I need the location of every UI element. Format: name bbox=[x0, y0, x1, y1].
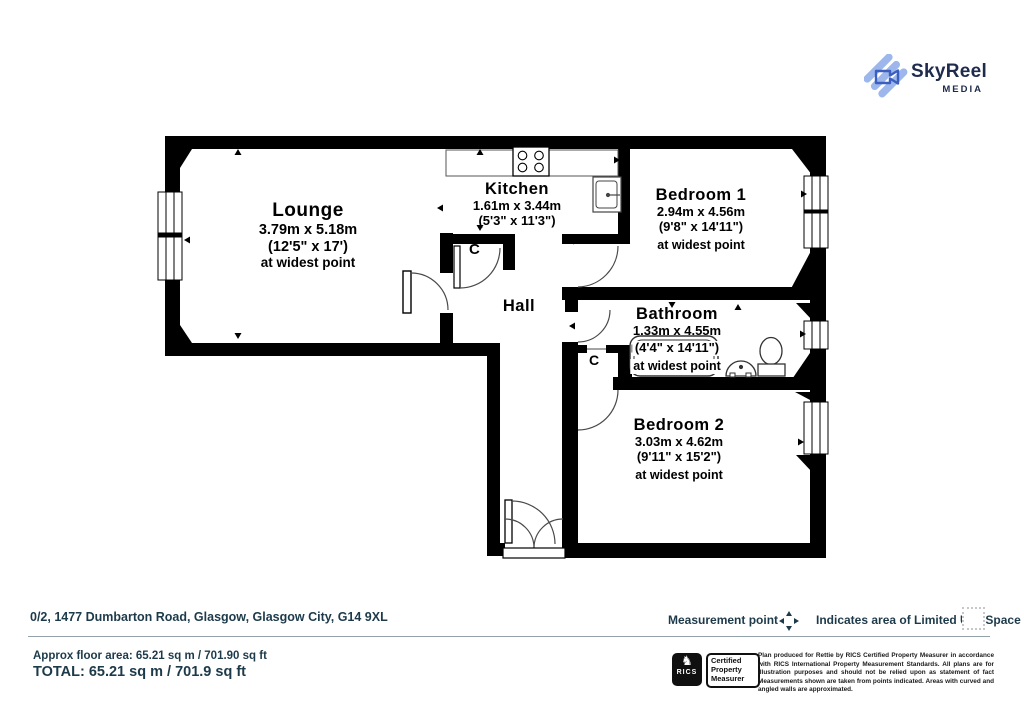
room-label-hall: Hall bbox=[503, 297, 535, 316]
video-camera-icon bbox=[864, 54, 908, 98]
arrow-left-icon bbox=[437, 205, 443, 212]
room-dims-metric: 3.03m x 4.62m bbox=[634, 435, 725, 450]
wall-cupboard2-stub-left bbox=[578, 345, 587, 353]
wall-cupboard2-stub-right bbox=[606, 345, 618, 353]
entrance-threshold bbox=[503, 548, 565, 558]
room-name: Hall bbox=[503, 297, 535, 316]
room-dims-metric: 1.33m x 4.55m bbox=[630, 324, 724, 339]
bedroom1-door-arc bbox=[578, 246, 618, 287]
room-dims-imperial: (5'3" x 11'3") bbox=[473, 214, 561, 229]
wall-top bbox=[165, 136, 826, 149]
kitchen-sink bbox=[593, 177, 621, 212]
room-label-bathroom: Bathroom 1.33m x 4.55m (4'4" x 14'11") a… bbox=[630, 305, 724, 376]
room-note: at widest point bbox=[634, 468, 725, 482]
chamfer-right-1 bbox=[786, 249, 812, 298]
rics-crest-icon: ♞ bbox=[672, 655, 702, 669]
bathroom-door-arc bbox=[578, 310, 610, 342]
room-note: at widest point bbox=[656, 238, 747, 252]
room-name: Bedroom 1 bbox=[656, 186, 747, 205]
bedroom1-window-2 bbox=[804, 213, 828, 248]
lounge-door bbox=[403, 271, 448, 313]
room-dims-imperial: (12'5" x 17') bbox=[259, 239, 357, 256]
room-dims-metric: 3.79m x 5.18m bbox=[259, 222, 357, 239]
cupboard1-label: C bbox=[469, 241, 480, 258]
rics-logo: ♞ RICS bbox=[672, 653, 702, 686]
arrow-right-icon bbox=[798, 439, 804, 446]
arrow-up-icon bbox=[735, 304, 742, 310]
room-name: Lounge bbox=[259, 200, 357, 222]
room-label-bedroom1: Bedroom 1 2.94m x 4.56m (9'8" x 14'11") … bbox=[656, 186, 747, 252]
toilet bbox=[758, 338, 785, 377]
lounge-window-2 bbox=[158, 237, 182, 280]
wall-bathroom-bottom bbox=[613, 377, 812, 390]
room-name: Bedroom 2 bbox=[634, 416, 725, 435]
arrow-down-icon bbox=[235, 333, 242, 339]
room-dims-metric: 1.61m x 3.44m bbox=[473, 199, 561, 214]
wall-lounge-hall-lower bbox=[440, 313, 453, 346]
arrow-left-icon bbox=[569, 323, 575, 330]
room-dims-imperial: (9'8" x 14'11") bbox=[656, 220, 747, 235]
room-label-kitchen: Kitchen 1.61m x 3.44m (5'3" x 11'3") bbox=[473, 180, 561, 229]
wall-hall-left bbox=[487, 343, 500, 556]
room-note: at widest point bbox=[630, 359, 724, 373]
chamfer-ne bbox=[792, 149, 812, 175]
cupboard2-label: C bbox=[589, 352, 599, 368]
wall-bottom-bed2 bbox=[562, 543, 826, 558]
room-dims-imperial: (4'4" x 14'11") bbox=[632, 341, 722, 356]
skyreel-logo-icon bbox=[864, 54, 908, 98]
arrow-up-icon bbox=[235, 149, 242, 155]
room-dims-metric: 2.94m x 4.56m bbox=[656, 205, 747, 220]
chamfer-nw bbox=[180, 149, 192, 168]
floorplan-page: Lounge 3.79m x 5.18m (12'5" x 17') at wi… bbox=[0, 0, 1024, 723]
wall-entrance-left-stub bbox=[487, 543, 505, 556]
room-note: at widest point bbox=[259, 255, 357, 271]
chamfer-sw bbox=[180, 325, 192, 343]
room-dims-imperial: (9'11" x 15'2") bbox=[634, 450, 725, 465]
wall-hall-right-seg bbox=[565, 287, 578, 312]
four-way-arrow-icon bbox=[778, 610, 800, 634]
wall-cupboard1-right bbox=[503, 244, 515, 270]
room-name: Kitchen bbox=[473, 180, 561, 199]
wall-bathroom-top bbox=[562, 287, 812, 300]
room-name: Bathroom bbox=[630, 305, 724, 324]
chamfer-right-4 bbox=[795, 392, 812, 401]
rics-wordmark: RICS bbox=[672, 669, 702, 676]
window-separator-left bbox=[158, 233, 182, 237]
chamfer-right-2 bbox=[796, 303, 812, 320]
lounge-window-1 bbox=[158, 192, 182, 233]
chamfer-right-3 bbox=[786, 350, 812, 388]
arrow-left-icon bbox=[184, 237, 190, 244]
bedroom2-window bbox=[804, 402, 828, 454]
chamfer-right-5 bbox=[796, 455, 812, 472]
hob bbox=[513, 147, 549, 176]
bedroom2-door-arc bbox=[578, 390, 618, 430]
bathroom-window bbox=[804, 321, 828, 349]
room-label-bedroom2: Bedroom 2 3.03m x 4.62m (9'11" x 15'2") … bbox=[634, 416, 725, 482]
entrance-door bbox=[505, 500, 555, 544]
bedroom1-window-1 bbox=[804, 176, 828, 210]
basin bbox=[726, 361, 756, 377]
room-label-lounge: Lounge 3.79m x 5.18m (12'5" x 17') at wi… bbox=[259, 200, 357, 271]
floor-plan-drawing bbox=[0, 0, 1024, 723]
